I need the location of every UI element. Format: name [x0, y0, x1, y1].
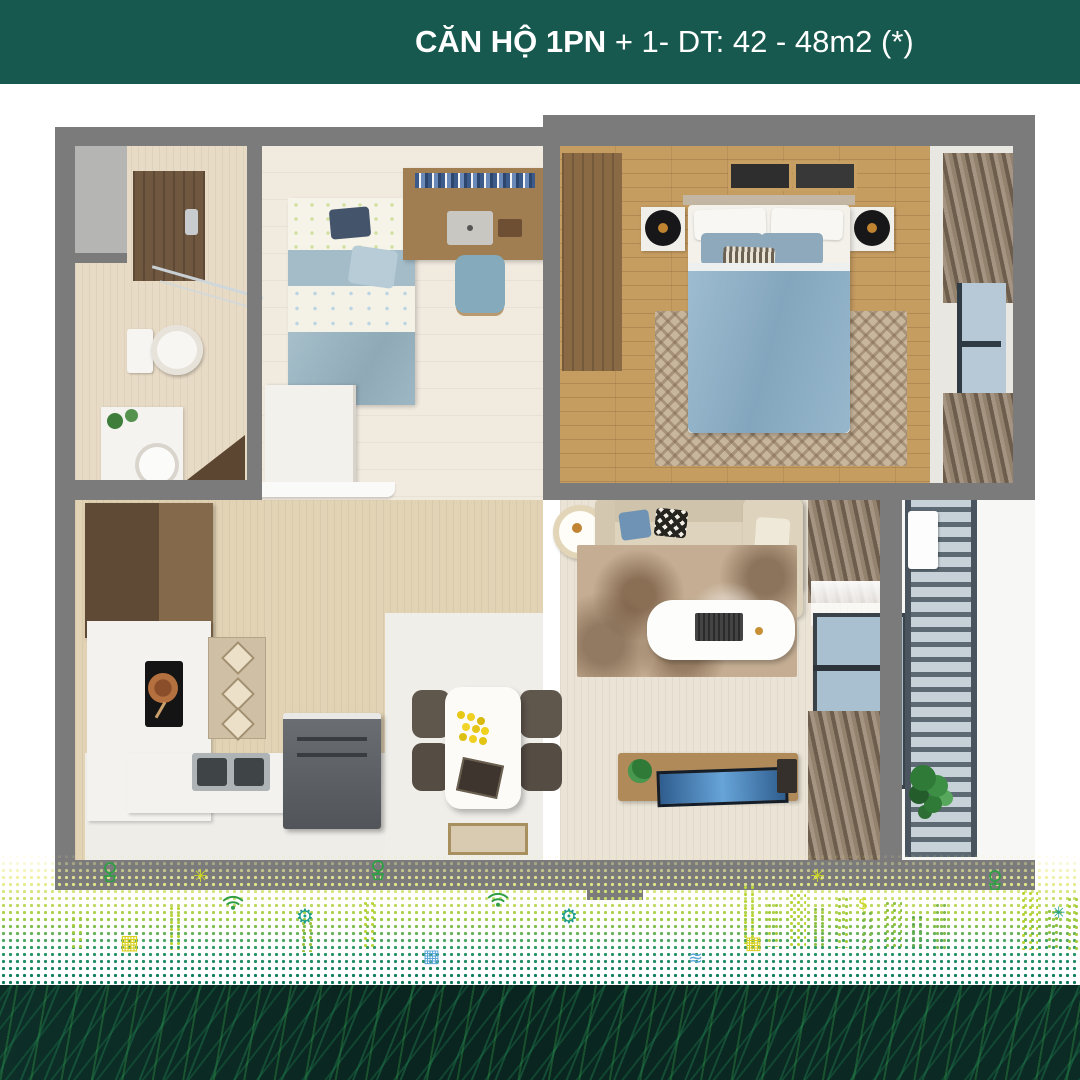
- dot-column: [812, 906, 824, 948]
- kitchen-island: [283, 713, 381, 829]
- title-area: + 1- DT: 42 - 48m2 (*): [606, 24, 914, 59]
- cushion-blue: [618, 509, 652, 541]
- door-mat: [448, 823, 528, 855]
- pillow: [329, 206, 371, 239]
- frying-pan: [148, 673, 178, 703]
- picture-frame: [728, 161, 792, 191]
- tree-icon: [368, 860, 388, 883]
- desk-chair: [455, 255, 505, 313]
- desk-shelf-books: [415, 173, 535, 188]
- kitchen-cabinet: [85, 503, 213, 638]
- pillow: [348, 245, 399, 289]
- sparkle-icon: ✳: [193, 868, 208, 886]
- kitchen-sink: [192, 753, 270, 791]
- wall-balcony: [880, 490, 902, 860]
- gear-icon: ⚙: [296, 906, 314, 926]
- gear-icon: ⚙: [560, 906, 578, 926]
- wall-bath-kitchen: [55, 480, 262, 500]
- dot-column: [766, 902, 778, 947]
- hall-shelf: [253, 482, 395, 497]
- plant-icon: [125, 409, 138, 422]
- wall-master-living: [543, 483, 1035, 500]
- dot-column: [836, 896, 852, 948]
- flower-vase: [457, 711, 465, 719]
- notebook: [498, 219, 522, 237]
- picture-frame: [793, 161, 857, 191]
- floor-lamp-bulb: [572, 523, 582, 533]
- curtain: [943, 153, 1013, 303]
- dot-column: [934, 902, 950, 950]
- page-title: CĂN HỘ 1PN + 1- DT: 42 - 48m2 (*): [415, 24, 914, 60]
- dot-column: [1066, 896, 1080, 950]
- plant-icon: [628, 759, 652, 783]
- tile-runner: [208, 637, 266, 739]
- island-handle: [297, 753, 367, 757]
- wall-top: [560, 115, 1035, 146]
- wardrobe: [265, 385, 356, 494]
- building-icon: ▦: [745, 935, 762, 953]
- double-bed: [688, 205, 850, 433]
- dot-column: [1020, 890, 1038, 950]
- tree-icon: [100, 862, 120, 885]
- dot-column: [70, 915, 82, 950]
- laptop-logo-dot: [467, 225, 473, 231]
- single-bed: [288, 198, 415, 405]
- speaker: [777, 759, 797, 793]
- dot-column: [910, 914, 922, 950]
- dot-column: [788, 892, 806, 950]
- island-handle: [297, 737, 367, 741]
- title-apartment-type: CĂN HỘ 1PN: [415, 24, 606, 59]
- dining-chair: [520, 690, 562, 738]
- dining-chair: [520, 743, 562, 791]
- tree-icon: [985, 870, 1005, 893]
- wifi-icon: [487, 890, 509, 913]
- dot-column: [168, 905, 180, 950]
- footer-palm-band: [0, 985, 1080, 1080]
- fountain-icon: ≋: [688, 950, 703, 968]
- dot-column: [860, 910, 872, 950]
- floor-plan: [55, 113, 1035, 890]
- bed-sheet-pattern: [288, 286, 415, 332]
- faucet: [185, 209, 198, 235]
- balcony-plant: [910, 765, 936, 791]
- bed-duvet: [688, 271, 850, 433]
- dot-column: [884, 900, 902, 950]
- wall-bathroom-divider: [247, 127, 262, 500]
- wifi-icon: [222, 893, 244, 916]
- sink-basin: [197, 758, 227, 786]
- laptop: [695, 613, 743, 641]
- toilet-tank: [127, 329, 153, 373]
- sink-basin: [234, 758, 264, 786]
- tile-diamond: [221, 641, 255, 675]
- lamp-bulb: [658, 223, 668, 233]
- tile-diamond: [221, 677, 255, 711]
- plant-icon: [107, 413, 123, 429]
- sparkle-icon: ✳: [1052, 905, 1065, 921]
- air-conditioner-unit: [908, 511, 938, 569]
- coffee-cup: [755, 627, 763, 635]
- grid-icon: ▦: [423, 948, 440, 966]
- dollar-icon: $: [858, 896, 868, 912]
- dot-column: [362, 900, 376, 950]
- wall-right: [1013, 115, 1035, 500]
- lamp-bulb: [867, 223, 877, 233]
- wall-bedroom-divider: [543, 115, 560, 500]
- wall-top: [55, 127, 560, 146]
- master-wardrobe: [562, 153, 622, 371]
- tile-diamond: [221, 707, 255, 741]
- window-mullion: [957, 341, 1001, 347]
- television: [656, 767, 788, 808]
- cushion-checkered: [654, 507, 689, 538]
- building-icon: ▦: [120, 932, 139, 952]
- sparkle-icon: ✳: [810, 868, 825, 886]
- toilet-bowl: [151, 325, 203, 375]
- headboard: [683, 195, 855, 205]
